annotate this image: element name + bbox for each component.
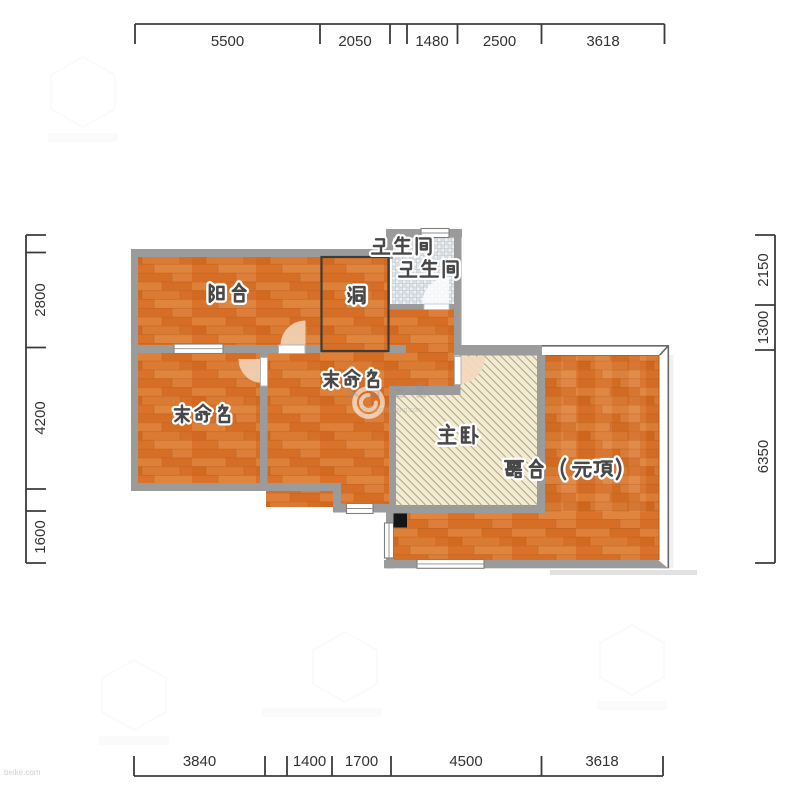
svg-text:1700: 1700 — [345, 753, 378, 770]
svg-text:1300: 1300 — [755, 311, 772, 344]
svg-text:1600: 1600 — [32, 520, 49, 553]
svg-text:3618: 3618 — [586, 33, 619, 50]
svg-text:5500: 5500 — [211, 33, 244, 50]
svg-text:2150: 2150 — [755, 253, 772, 286]
svg-text:4200: 4200 — [32, 401, 49, 434]
svg-text:1400: 1400 — [293, 753, 326, 770]
svg-text:1480: 1480 — [415, 33, 448, 50]
svg-text:3618: 3618 — [585, 753, 618, 770]
svg-text:4500: 4500 — [449, 753, 482, 770]
svg-text:beikezhaofang.com: beikezhaofang.com — [362, 407, 423, 414]
svg-text:2050: 2050 — [338, 33, 371, 50]
svg-text:2800: 2800 — [32, 283, 49, 316]
svg-text:2500: 2500 — [483, 33, 516, 50]
svg-text:3840: 3840 — [183, 753, 216, 770]
svg-text:6350: 6350 — [755, 440, 772, 473]
svg-text:beike.com: beike.com — [4, 768, 41, 777]
